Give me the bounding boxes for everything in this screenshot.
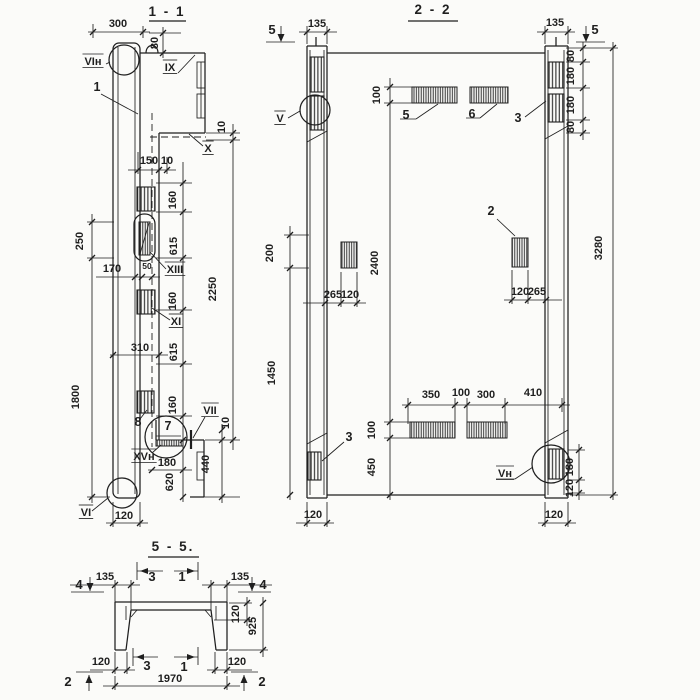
marker-label: 1 xyxy=(180,659,187,674)
ref-label: VII xyxy=(203,405,216,417)
ref-label: XVн xyxy=(133,451,154,463)
dim-label: 120 xyxy=(341,289,359,301)
dim-label: 170 xyxy=(103,263,121,275)
embed-plate xyxy=(308,452,321,480)
embed-plate xyxy=(137,290,155,314)
section-1-1-labels: 30080VIн1IX15010X10160615225025017050XII… xyxy=(70,18,232,522)
dim-label: 180 xyxy=(158,457,176,469)
item-label: 8 xyxy=(135,415,142,429)
item-label: 2 xyxy=(488,204,495,218)
ref-label: XI xyxy=(171,316,181,328)
marker-label: 4 xyxy=(75,577,83,592)
dim-label: 3280 xyxy=(593,236,605,260)
item-label: 3 xyxy=(346,430,353,444)
embed-plate xyxy=(341,242,357,268)
dim-label: 135 xyxy=(96,571,114,583)
dim-label: 450 xyxy=(366,458,378,476)
bearing-plate xyxy=(156,440,183,446)
dim-label: 160 xyxy=(167,292,179,310)
item-label: 6 xyxy=(469,107,476,121)
embed-plate xyxy=(548,449,564,479)
dim-label: 180 xyxy=(564,458,576,476)
section-title-1-1: 1 - 1 xyxy=(148,4,185,19)
dim-label: 265 xyxy=(324,289,342,301)
dim-label: 80 xyxy=(565,121,577,133)
item-label: 5 xyxy=(403,108,410,122)
dim-label: 1970 xyxy=(158,673,182,685)
dim-label: 310 xyxy=(131,342,149,354)
dim-label: 180 xyxy=(565,67,577,85)
dim-label: 120 xyxy=(230,605,242,623)
dim-label: 135 xyxy=(308,18,326,30)
marker-label: 1 xyxy=(178,569,185,584)
dim-label: 160 xyxy=(167,191,179,209)
drawing-canvas: 1 - 1 30080VIн1IX15010X10160615225025017… xyxy=(0,0,700,700)
marker-label: 2 xyxy=(64,674,71,689)
dim-label: 150 xyxy=(140,155,158,167)
dim-label: 250 xyxy=(74,232,86,250)
dim-label: 1450 xyxy=(266,361,278,385)
dim-label: 440 xyxy=(200,455,212,473)
section-5-5-labels: 413531135412092512012031197022 xyxy=(64,569,267,689)
ref-label: VI xyxy=(81,507,91,519)
dim-label: 10 xyxy=(220,417,232,429)
dim-label: 120 xyxy=(115,510,133,522)
embed-plate xyxy=(548,62,564,88)
dim-label: 120 xyxy=(564,479,576,497)
dim-label: 120 xyxy=(228,656,246,668)
item-label: 1 xyxy=(94,80,101,94)
ref-label: X xyxy=(204,143,212,155)
dim-label: 620 xyxy=(164,473,176,491)
hatch-bar xyxy=(410,422,455,438)
marker-label: 3 xyxy=(148,569,155,584)
dim-label: 120 xyxy=(92,656,110,668)
dim-label: 300 xyxy=(109,18,127,30)
dim-label: 120 xyxy=(511,286,529,298)
ref-label: VIн xyxy=(84,56,101,68)
item-label: 3 xyxy=(515,111,522,125)
marker-label: 3 xyxy=(143,658,150,673)
hatch-bar-6 xyxy=(470,87,508,103)
embed-plate xyxy=(137,187,155,211)
dim-label: 100 xyxy=(366,421,378,439)
dim-label: 200 xyxy=(264,244,276,262)
dim-label: 180 xyxy=(565,96,577,114)
ref-label: XIII xyxy=(167,264,184,276)
ref-label: Vн xyxy=(498,468,512,480)
dim-label: 10 xyxy=(216,121,228,133)
marker-label: 4 xyxy=(259,577,267,592)
dim-label: 135 xyxy=(546,17,564,29)
embed-plate-2 xyxy=(512,238,528,267)
embed-plate xyxy=(310,57,324,92)
section-title-2-2: 2 - 2 xyxy=(414,2,451,17)
dim-label: 350 xyxy=(422,389,440,401)
hatch-bar xyxy=(467,422,507,438)
dim-label: 120 xyxy=(545,509,563,521)
dims-label: 50 xyxy=(142,261,152,271)
ref-label: IX xyxy=(165,62,176,74)
dim-label: 135 xyxy=(231,571,249,583)
dim-label: 80 xyxy=(149,37,161,49)
dim-label: 300 xyxy=(477,389,495,401)
marker-label: 2 xyxy=(258,674,265,689)
embed-plate xyxy=(137,391,154,413)
dim-label: 120 xyxy=(304,509,322,521)
dim-label: 100 xyxy=(371,86,383,104)
detail-circle-vi xyxy=(107,478,137,508)
dim-label: 1800 xyxy=(70,385,82,409)
dim-label: 10 xyxy=(161,155,173,167)
section-title-5-5: 5 - 5. xyxy=(152,539,195,554)
embed-plate xyxy=(548,94,564,122)
dim-label: 2250 xyxy=(207,277,219,301)
dim-label: 615 xyxy=(168,343,180,361)
marker-label: 5 xyxy=(591,22,598,37)
hatch-bar-5 xyxy=(412,87,457,103)
ref-label: V xyxy=(276,113,284,125)
drawing-sheet: 1 - 1 30080VIн1IX15010X10160615225025017… xyxy=(0,0,700,700)
dim-label: 410 xyxy=(524,387,542,399)
item-label: 7 xyxy=(165,419,172,433)
dim-label: 80 xyxy=(565,50,577,62)
dim-label: 615 xyxy=(168,237,180,255)
dim-label: 2400 xyxy=(369,251,381,275)
dim-label: 100 xyxy=(452,387,470,399)
dim-label: 160 xyxy=(167,396,179,414)
dim-label: 265 xyxy=(528,286,546,298)
marker-label: 5 xyxy=(268,22,275,37)
dim-label: 925 xyxy=(247,617,259,635)
